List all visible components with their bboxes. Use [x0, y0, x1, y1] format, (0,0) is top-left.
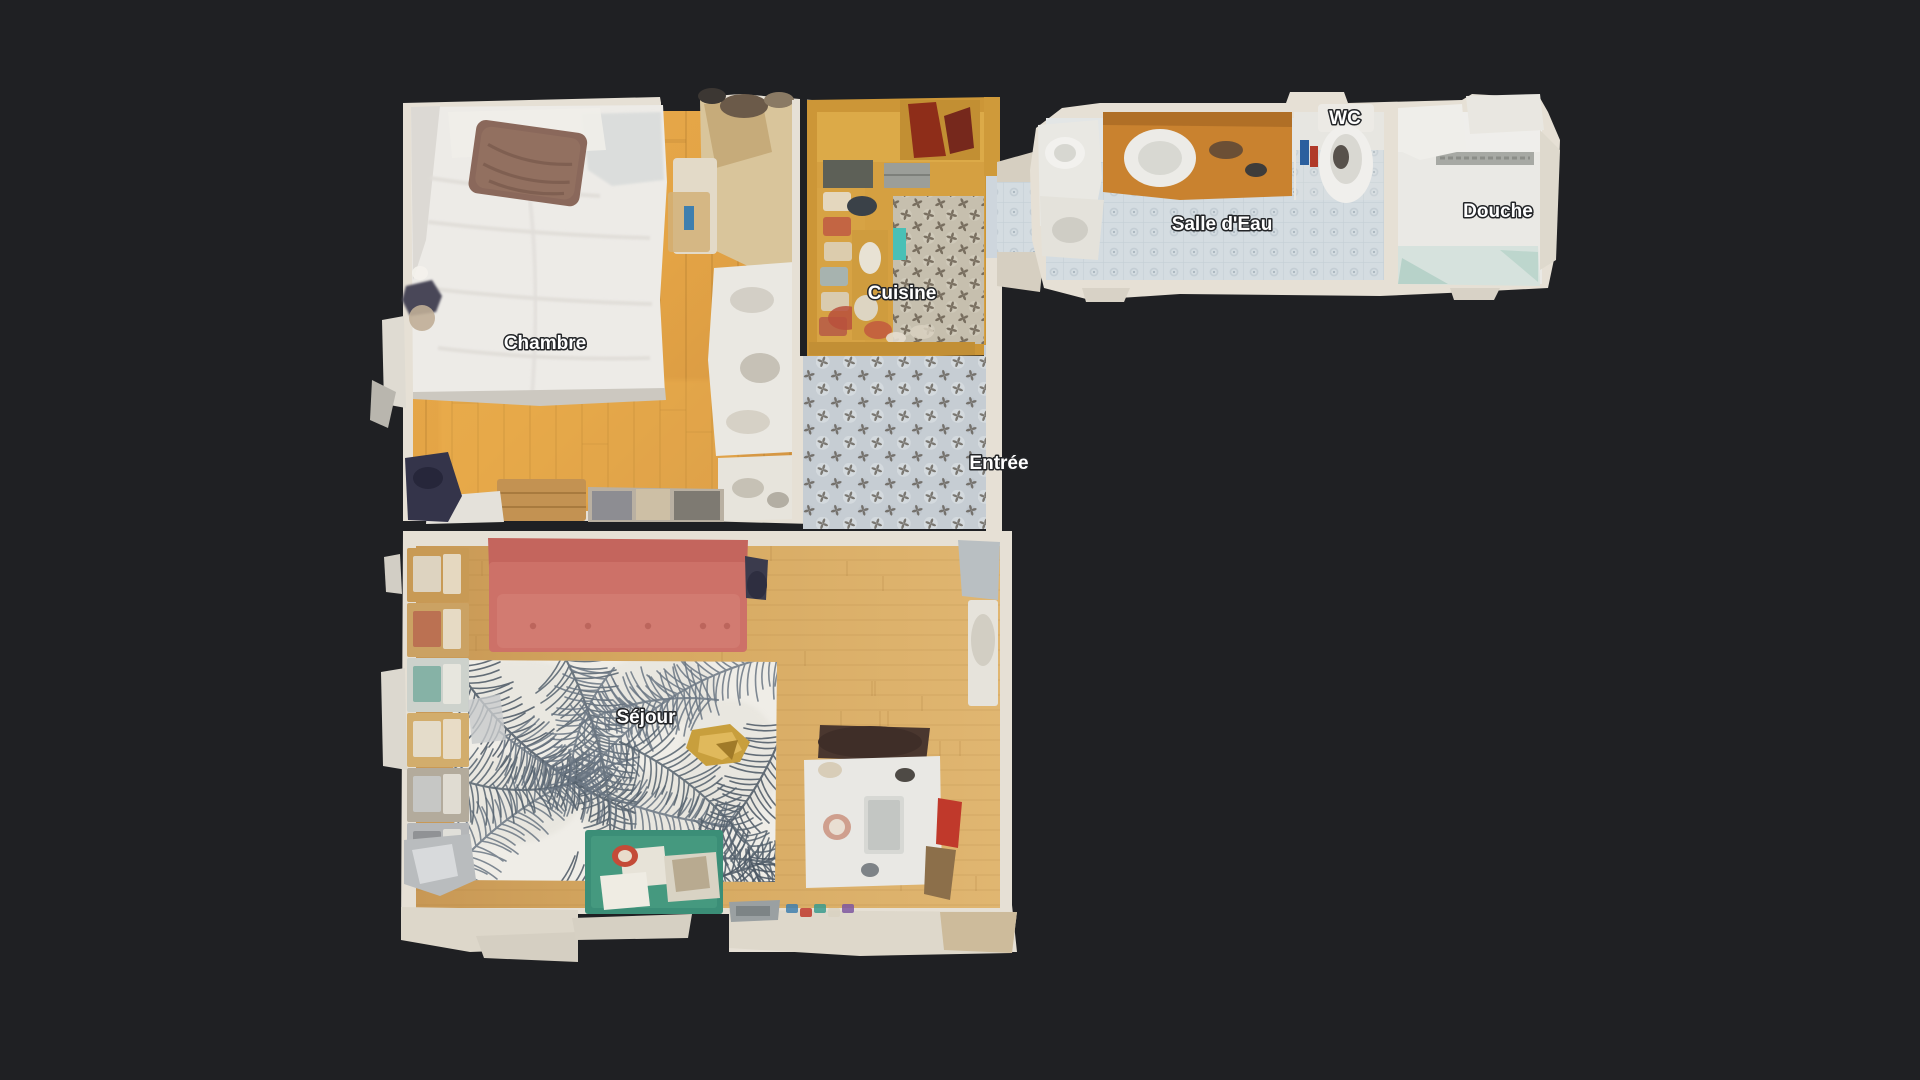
svg-text:Entrée: Entrée: [969, 453, 1028, 474]
svg-text:Douche: Douche: [1463, 201, 1533, 222]
svg-text:Séjour: Séjour: [616, 707, 676, 728]
svg-text:Cuisine: Cuisine: [868, 283, 937, 304]
svg-text:Chambre: Chambre: [504, 333, 586, 354]
svg-text:Salle d'Eau: Salle d'Eau: [1172, 214, 1273, 235]
svg-text:WC: WC: [1329, 108, 1361, 129]
